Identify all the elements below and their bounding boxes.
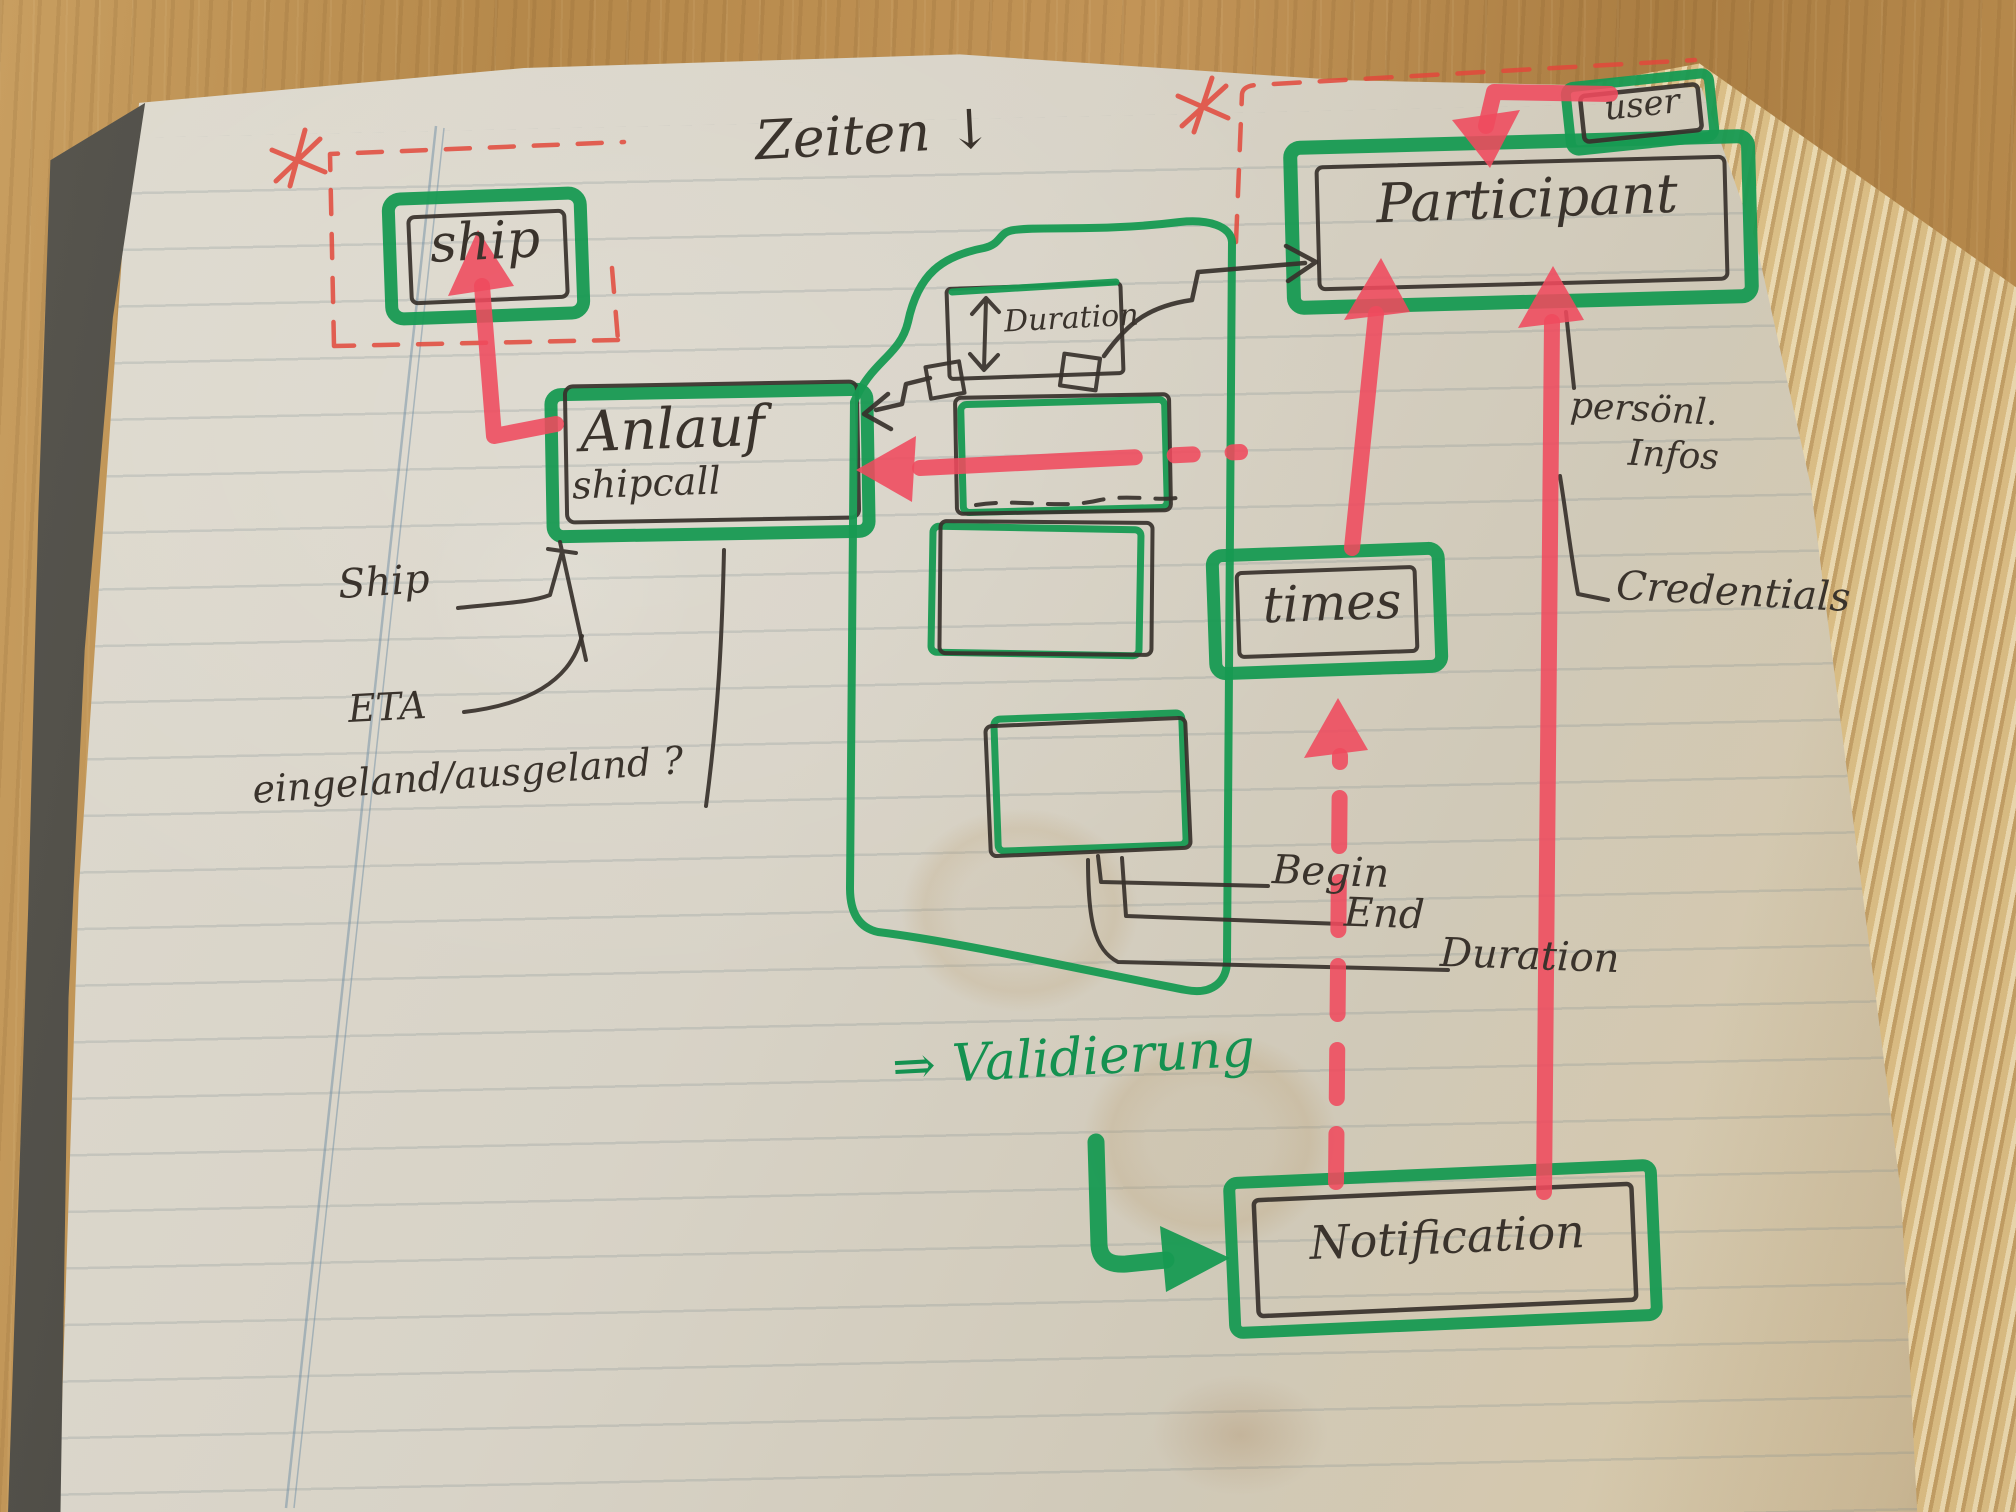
times-to-anlauf-dashed-arrow bbox=[856, 436, 1240, 502]
begin-attr-label: Begin bbox=[1271, 850, 1390, 894]
eta-attr-label: ETA bbox=[347, 686, 427, 728]
personal-infos-label-line2: Infos bbox=[1627, 436, 1720, 477]
duration-to-anlauf-arrow bbox=[864, 378, 930, 429]
validierung-to-notification-arrow bbox=[1096, 1142, 1230, 1292]
personal-infos-label-line1: persönl. bbox=[1569, 388, 1719, 432]
empty-box-3 bbox=[985, 713, 1190, 857]
notification-to-times-arrow bbox=[1304, 698, 1368, 1182]
anlauf-box-label: Anlauf bbox=[579, 399, 765, 461]
anlauf-box-sublabel: shipcall bbox=[571, 461, 721, 504]
duration-box-label: Duration bbox=[1003, 300, 1139, 337]
ship-asterisk-icon bbox=[272, 130, 325, 186]
participant-box-label: Participant bbox=[1321, 165, 1733, 233]
duration-attr-label: Duration bbox=[1439, 933, 1620, 979]
credentials-label: Credentials bbox=[1615, 566, 1851, 618]
notebook-photo: Zeiten ↓ ship Anlauf shipcall Participan… bbox=[0, 0, 2016, 1512]
personal-infos-connector bbox=[1566, 312, 1574, 388]
eingeland-connector bbox=[706, 550, 724, 806]
end-attr-label: End bbox=[1343, 893, 1425, 936]
zeiten-heading: Zeiten ↓ bbox=[754, 102, 994, 168]
margin-line bbox=[286, 126, 444, 1508]
eta-connector bbox=[464, 636, 582, 712]
ink-strokes bbox=[0, 0, 2016, 1512]
credentials-connector bbox=[1560, 476, 1608, 600]
ship-box-label: ship bbox=[399, 212, 571, 273]
empty-box-2 bbox=[931, 521, 1153, 656]
duration-updown-arrow-icon bbox=[970, 298, 999, 370]
ship-attr-label: Ship bbox=[337, 559, 431, 605]
participant-asterisk-icon bbox=[1178, 78, 1228, 132]
ship-attr-connector bbox=[458, 542, 586, 660]
times-box-label: times bbox=[1251, 575, 1413, 631]
